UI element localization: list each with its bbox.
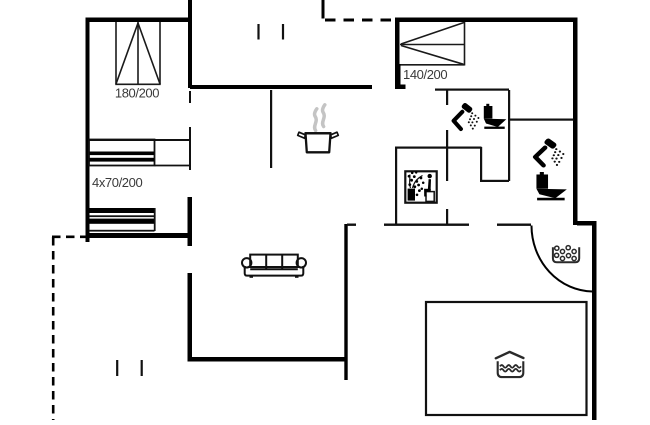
svg-text:140/200: 140/200 xyxy=(403,67,447,82)
svg-text:4x70/200: 4x70/200 xyxy=(92,175,142,190)
svg-text:180/200: 180/200 xyxy=(115,86,159,101)
